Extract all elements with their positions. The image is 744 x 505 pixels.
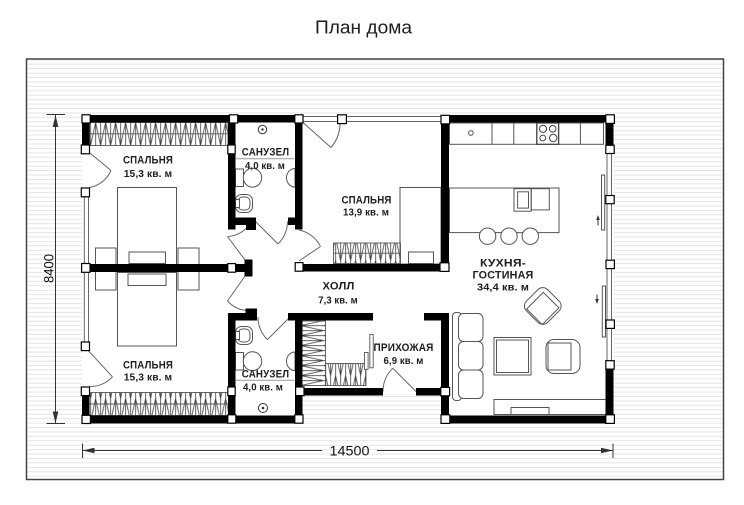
svg-text:15,3 кв. м: 15,3 кв. м [124,168,173,180]
svg-text:СПАЛЬНЯ: СПАЛЬНЯ [342,195,392,207]
svg-text:ГОСТИНАЯ: ГОСТИНАЯ [473,270,534,282]
svg-text:План дома: План дома [315,17,413,38]
svg-text:КУХНЯ-: КУХНЯ- [480,258,526,270]
svg-text:СПАЛЬНЯ: СПАЛЬНЯ [123,360,173,372]
svg-text:8400: 8400 [42,254,57,283]
svg-text:15,3 кв. м: 15,3 кв. м [124,372,173,384]
svg-text:6,9 кв. м: 6,9 кв. м [384,355,424,367]
svg-text:ХОЛЛ: ХОЛЛ [323,281,355,293]
svg-text:14500: 14500 [330,444,370,459]
svg-text:7,3 кв. м: 7,3 кв. м [318,295,358,307]
svg-text:13,9 кв. м: 13,9 кв. м [343,207,389,219]
svg-text:ПРИХОЖАЯ: ПРИХОЖАЯ [374,342,434,354]
svg-text:4,0 кв. м: 4,0 кв. м [245,160,285,172]
svg-text:САНУЗЕЛ: САНУЗЕЛ [242,147,290,159]
svg-text:САНУЗЕЛ: САНУЗЕЛ [242,369,290,381]
svg-text:СПАЛЬНЯ: СПАЛЬНЯ [123,155,173,167]
svg-text:4,0 кв. м: 4,0 кв. м [243,382,283,394]
svg-text:34,4 кв. м: 34,4 кв. м [477,282,529,294]
